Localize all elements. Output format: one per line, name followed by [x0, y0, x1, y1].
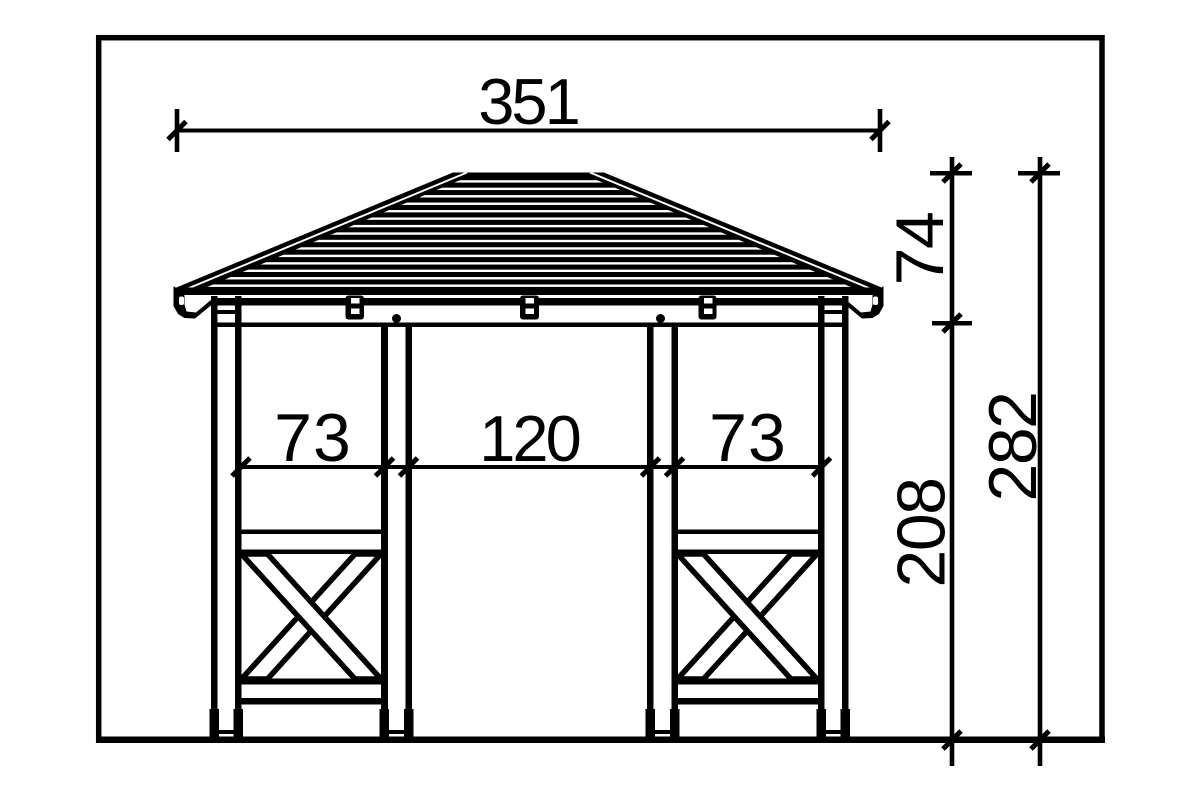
svg-text:208: 208 [884, 479, 960, 588]
svg-text:351: 351 [478, 65, 577, 138]
svg-text:120: 120 [479, 402, 579, 475]
svg-text:73: 73 [709, 400, 787, 476]
svg-text:74: 74 [882, 213, 958, 286]
svg-text:282: 282 [975, 393, 1051, 502]
svg-text:73: 73 [274, 400, 352, 476]
